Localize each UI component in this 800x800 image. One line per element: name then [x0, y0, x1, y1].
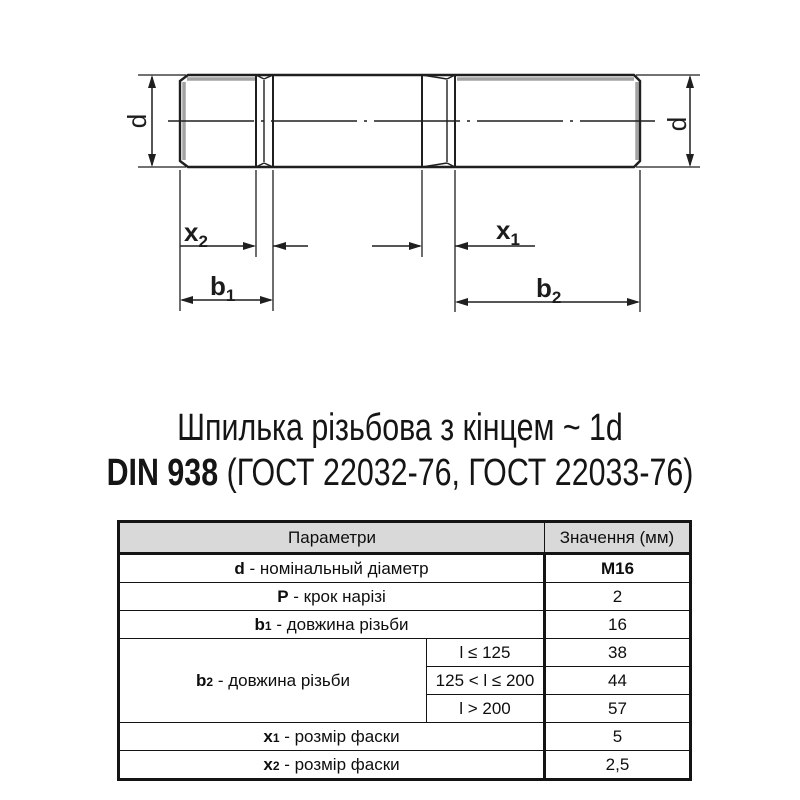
- dim-label-x1: x1: [496, 215, 520, 249]
- stud-technical-drawing: d d x2 x1 b1 b2: [0, 0, 800, 340]
- table-header-row: Параметри Значення (мм): [119, 522, 691, 554]
- spec-table: Параметри Значення (мм) d - номінальный …: [117, 520, 692, 781]
- dim-label-b1: b1: [210, 271, 235, 305]
- product-spec-page: d d x2 x1 b1 b2 Шпилька різьбова з кінце…: [0, 0, 800, 800]
- header-params: Параметри: [119, 522, 545, 554]
- cond-cell-1: l ≤ 125: [427, 639, 545, 667]
- param-cell-p: P - крок нарізі: [119, 583, 545, 611]
- cond-cell-2: 125 < l ≤ 200: [427, 667, 545, 695]
- table-row-x1: x1 - розмір фаски 5: [119, 723, 691, 751]
- table-row-b2-1: b2 - довжина різьби l ≤ 125 38: [119, 639, 691, 667]
- dim-label-b2: b2: [536, 273, 561, 307]
- product-standard: DIN 938 (ГОСТ 22032-76, ГОСТ 22033-76): [80, 451, 720, 496]
- dim-label-x2: x2: [184, 217, 208, 251]
- value-cell-b2-1: 38: [545, 639, 691, 667]
- table-row-d: d - номінальный діаметр M16: [119, 554, 691, 583]
- title-block: Шпилька різьбова з кінцем ~ 1d DIN 938 (…: [0, 406, 800, 496]
- standard-din: DIN 938: [107, 452, 219, 494]
- param-cell-d: d - номінальный діаметр: [119, 554, 545, 583]
- param-cell-x1: x1 - розмір фаски: [119, 723, 545, 751]
- dim-label-d-left: d: [122, 114, 152, 128]
- table-row-x2: x2 - розмір фаски 2,5: [119, 751, 691, 780]
- value-cell-x1: 5: [545, 723, 691, 751]
- dim-label-d-right: d: [662, 117, 692, 131]
- cond-cell-3: l > 200: [427, 695, 545, 723]
- product-title: Шпилька різьбова з кінцем ~ 1d: [80, 406, 720, 451]
- value-cell-b1: 16: [545, 611, 691, 639]
- value-cell-d: M16: [545, 554, 691, 583]
- value-cell-p: 2: [545, 583, 691, 611]
- standard-gost: (ГОСТ 22032-76, ГОСТ 22033-76): [218, 452, 693, 494]
- table-row-p: P - крок нарізі 2: [119, 583, 691, 611]
- header-value: Значення (мм): [545, 522, 691, 554]
- value-cell-b2-3: 57: [545, 695, 691, 723]
- thread-shading: [184, 79, 637, 160]
- value-cell-x2: 2,5: [545, 751, 691, 780]
- table-row-b1: b1 - довжина різьби 16: [119, 611, 691, 639]
- param-cell-b1: b1 - довжина різьби: [119, 611, 545, 639]
- param-cell-b2: b2 - довжина різьби: [119, 639, 427, 723]
- value-cell-b2-2: 44: [545, 667, 691, 695]
- param-cell-x2: x2 - розмір фаски: [119, 751, 545, 780]
